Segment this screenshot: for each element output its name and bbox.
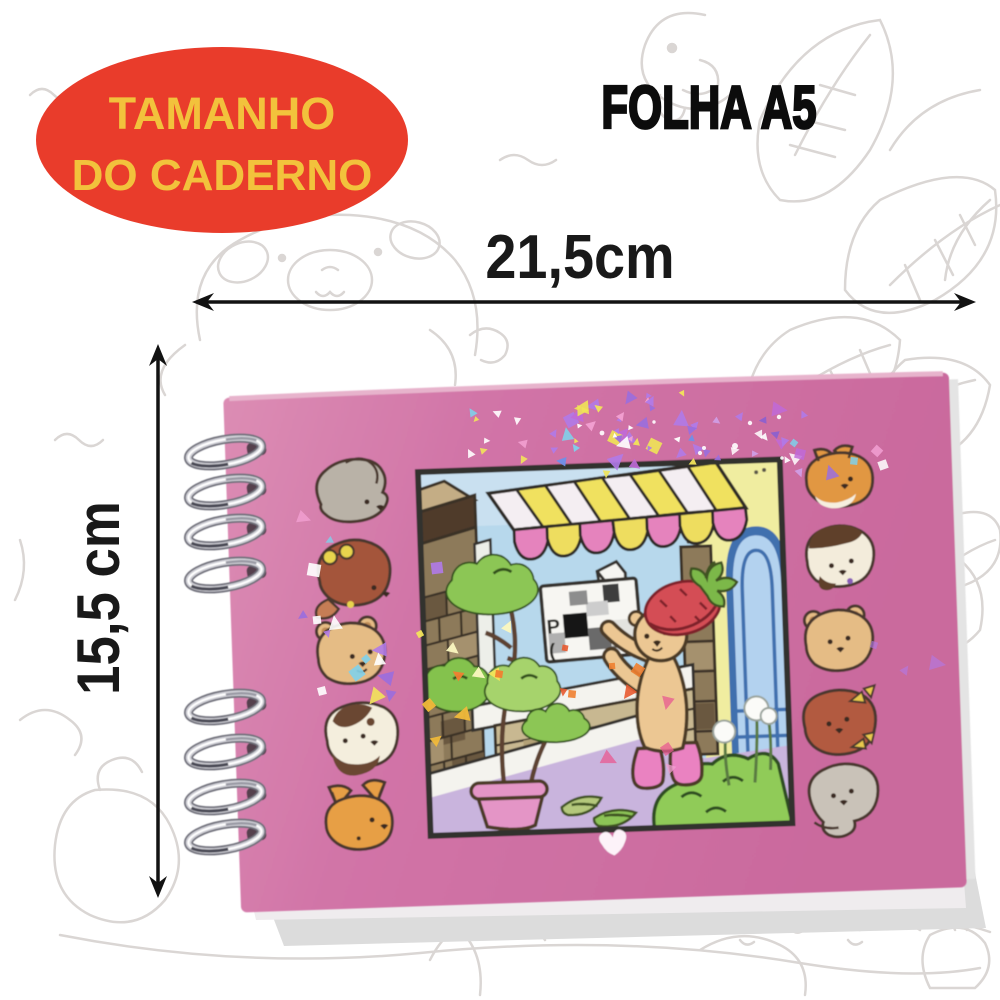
svg-text:TAMANHO: TAMANHO xyxy=(109,88,336,139)
svg-text:DO CADERNO: DO CADERNO xyxy=(72,151,373,200)
svg-text:P: P xyxy=(546,616,561,639)
svg-text:FOLHA A5: FOLHA A5 xyxy=(601,74,816,142)
svg-text:21,5cm: 21,5cm xyxy=(485,223,674,291)
svg-text:15,5 cm: 15,5 cm xyxy=(65,501,132,695)
